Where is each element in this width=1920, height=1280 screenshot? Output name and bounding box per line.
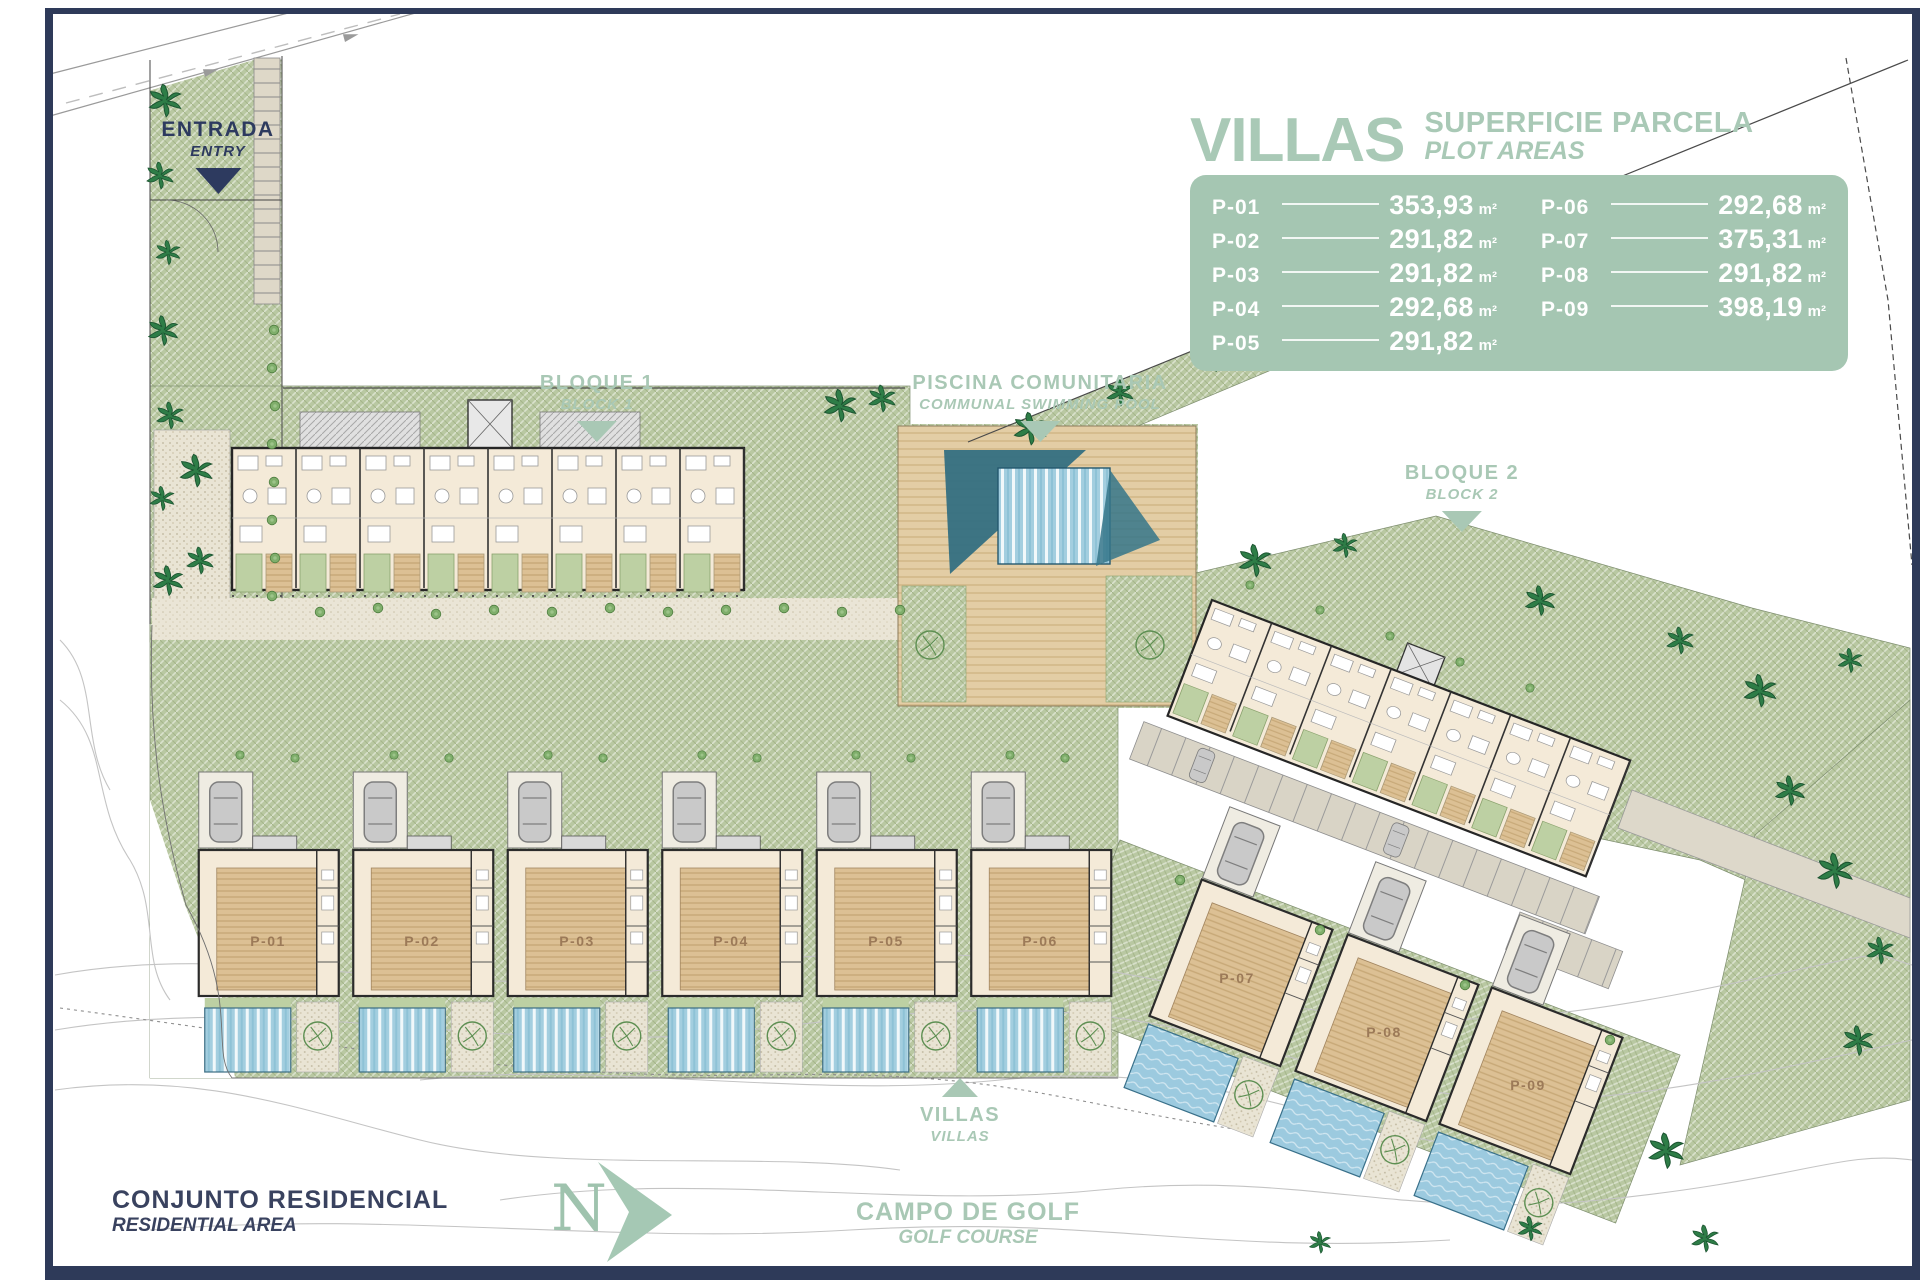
plot-marker-p02: P-02: [404, 933, 440, 949]
plot-row: P-02291,82m²: [1212, 224, 1497, 252]
leader-line: [1282, 271, 1379, 273]
area-unit: m²: [1808, 201, 1826, 218]
plot-marker-p07: P-07: [1219, 970, 1255, 986]
plot-id: P-06: [1541, 196, 1601, 220]
block2-label-en: BLOCK 2: [1405, 486, 1519, 503]
plot-area-value: 398,19: [1718, 292, 1802, 323]
golf-course-label: CAMPO DE GOLF GOLF COURSE: [856, 1198, 1080, 1249]
plot-row: P-08291,82m²: [1541, 258, 1826, 286]
plot-id: P-08: [1541, 264, 1601, 288]
plot-area-value: 353,93: [1389, 190, 1473, 221]
leader-line: [1282, 237, 1379, 239]
leader-line: [1611, 203, 1708, 205]
area-unit: m²: [1479, 337, 1497, 354]
north-label: N: [551, 1172, 607, 1246]
area-unit: m²: [1479, 303, 1497, 320]
leader-line: [1282, 203, 1379, 205]
plot-areas-table: P-01353,93m² P-02291,82m² P-03291,82m² P…: [1190, 175, 1848, 371]
plot-marker-p05: P-05: [868, 933, 904, 949]
villas-label-es: VILLAS: [920, 1104, 1000, 1127]
arrow-up-icon: [942, 1078, 978, 1097]
plot-area-value: 375,31: [1718, 224, 1802, 255]
block2-label-es: BLOQUE 2: [1405, 462, 1519, 485]
communal-pool-label: PISCINA COMUNITARIA COMMUNAL SWIMMING PO…: [912, 372, 1167, 442]
residential-area-label-en: RESIDENTIAL AREA: [112, 1215, 448, 1237]
golf-course-label-es: CAMPO DE GOLF: [856, 1198, 1080, 1227]
plot-row: P-09398,19m²: [1541, 292, 1826, 320]
plot-id: P-07: [1541, 230, 1601, 254]
plot-id: P-09: [1541, 298, 1601, 322]
legend-subtitle-es: SUPERFICIE PARCELA: [1424, 109, 1753, 139]
plot-row: P-06292,68m²: [1541, 190, 1826, 218]
golf-course-label-en: GOLF COURSE: [856, 1227, 1080, 1249]
area-unit: m²: [1479, 201, 1497, 218]
block1-label-es: BLOQUE 1: [540, 372, 654, 395]
plot-marker-p01: P-01: [250, 933, 286, 949]
plot-marker-p04: P-04: [713, 933, 749, 949]
plot-area-value: 292,68: [1718, 190, 1802, 221]
area-unit: m²: [1479, 269, 1497, 286]
plot-row: P-03291,82m²: [1212, 258, 1497, 286]
communal-pool-area: [898, 426, 1196, 706]
plot-row: P-04292,68m²: [1212, 292, 1497, 320]
residential-area-label-es: CONJUNTO RESIDENCIAL: [112, 1186, 448, 1215]
plot-id: P-05: [1212, 332, 1272, 356]
villas-label-en: VILLAS: [920, 1128, 1000, 1145]
leader-line: [1282, 305, 1379, 307]
plot-marker-p06: P-06: [1022, 933, 1058, 949]
plot-areas-column-1: P-01353,93m² P-02291,82m² P-03291,82m² P…: [1212, 190, 1497, 354]
communal-pool-label-es: PISCINA COMUNITARIA: [912, 372, 1167, 395]
block1-label: BLOQUE 1 BLOCK 1: [540, 372, 654, 442]
legend-subtitle: SUPERFICIE PARCELA PLOT AREAS: [1424, 109, 1753, 166]
plot-area-value: 292,68: [1389, 292, 1473, 323]
block2-label: BLOQUE 2 BLOCK 2: [1405, 462, 1519, 532]
plot-areas-legend: VILLAS SUPERFICIE PARCELA PLOT AREAS P-0…: [1190, 78, 1848, 371]
plot-row: P-07375,31m²: [1541, 224, 1826, 252]
arrow-down-icon: [1442, 511, 1482, 532]
plot-id: P-02: [1212, 230, 1272, 254]
plot-row: P-01353,93m²: [1212, 190, 1497, 218]
entry-label-es: ENTRADA: [161, 118, 274, 142]
area-unit: m²: [1479, 235, 1497, 252]
arrow-down-icon: [195, 168, 241, 194]
entry-label-en: ENTRY: [161, 143, 274, 160]
leader-line: [1611, 237, 1708, 239]
plot-area-value: 291,82: [1389, 224, 1473, 255]
leader-line: [1611, 305, 1708, 307]
villas-label: VILLAS VILLAS: [920, 1078, 1000, 1145]
leader-line: [1611, 271, 1708, 273]
communal-pool-label-en: COMMUNAL SWIMMING POOL: [912, 396, 1167, 413]
entry-label: ENTRADA ENTRY: [161, 118, 274, 194]
communal-pool: [998, 468, 1110, 564]
plot-areas-column-2: P-06292,68m² P-07375,31m² P-08291,82m² P…: [1541, 190, 1826, 354]
plot-id: P-04: [1212, 298, 1272, 322]
site-plan-page: VILLAS SUPERFICIE PARCELA PLOT AREAS P-0…: [0, 0, 1920, 1280]
plot-id: P-01: [1212, 196, 1272, 220]
plot-area-value: 291,82: [1389, 258, 1473, 289]
arrow-down-icon: [577, 421, 617, 442]
plot-area-value: 291,82: [1718, 258, 1802, 289]
plot-marker-p08: P-08: [1366, 1024, 1402, 1040]
plot-marker-p09: P-09: [1510, 1077, 1546, 1093]
area-unit: m²: [1808, 269, 1826, 286]
plot-id: P-03: [1212, 264, 1272, 288]
area-unit: m²: [1808, 303, 1826, 320]
legend-title: VILLAS: [1190, 116, 1404, 166]
plot-area-value: 291,82: [1389, 326, 1473, 357]
area-unit: m²: [1808, 235, 1826, 252]
plot-marker-p03: P-03: [559, 933, 595, 949]
arrow-down-icon: [1020, 421, 1060, 442]
block1-label-en: BLOCK 1: [540, 396, 654, 413]
plot-row: P-05291,82m²: [1212, 326, 1497, 354]
legend-header: VILLAS SUPERFICIE PARCELA PLOT AREAS: [1190, 78, 1848, 166]
leader-line: [1282, 339, 1379, 341]
legend-subtitle-en: PLOT AREAS: [1424, 139, 1753, 165]
residential-area-label: CONJUNTO RESIDENCIAL RESIDENTIAL AREA: [112, 1186, 448, 1237]
